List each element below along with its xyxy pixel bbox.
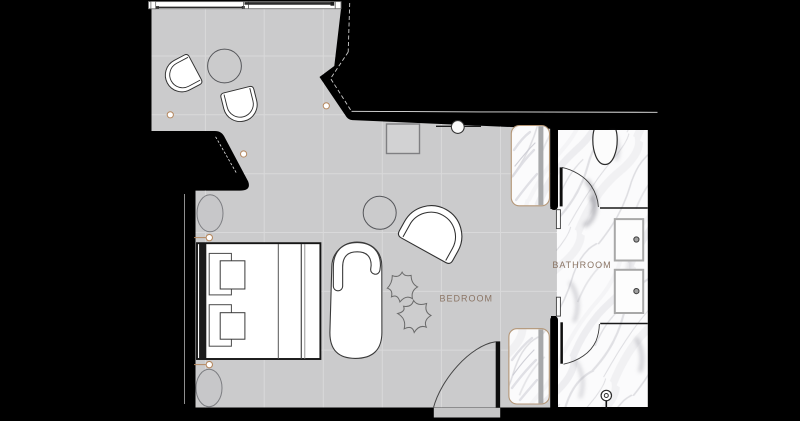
svg-text:BATHROOM: BATHROOM — [552, 260, 611, 270]
svg-text:BEDROOM: BEDROOM — [440, 294, 494, 304]
